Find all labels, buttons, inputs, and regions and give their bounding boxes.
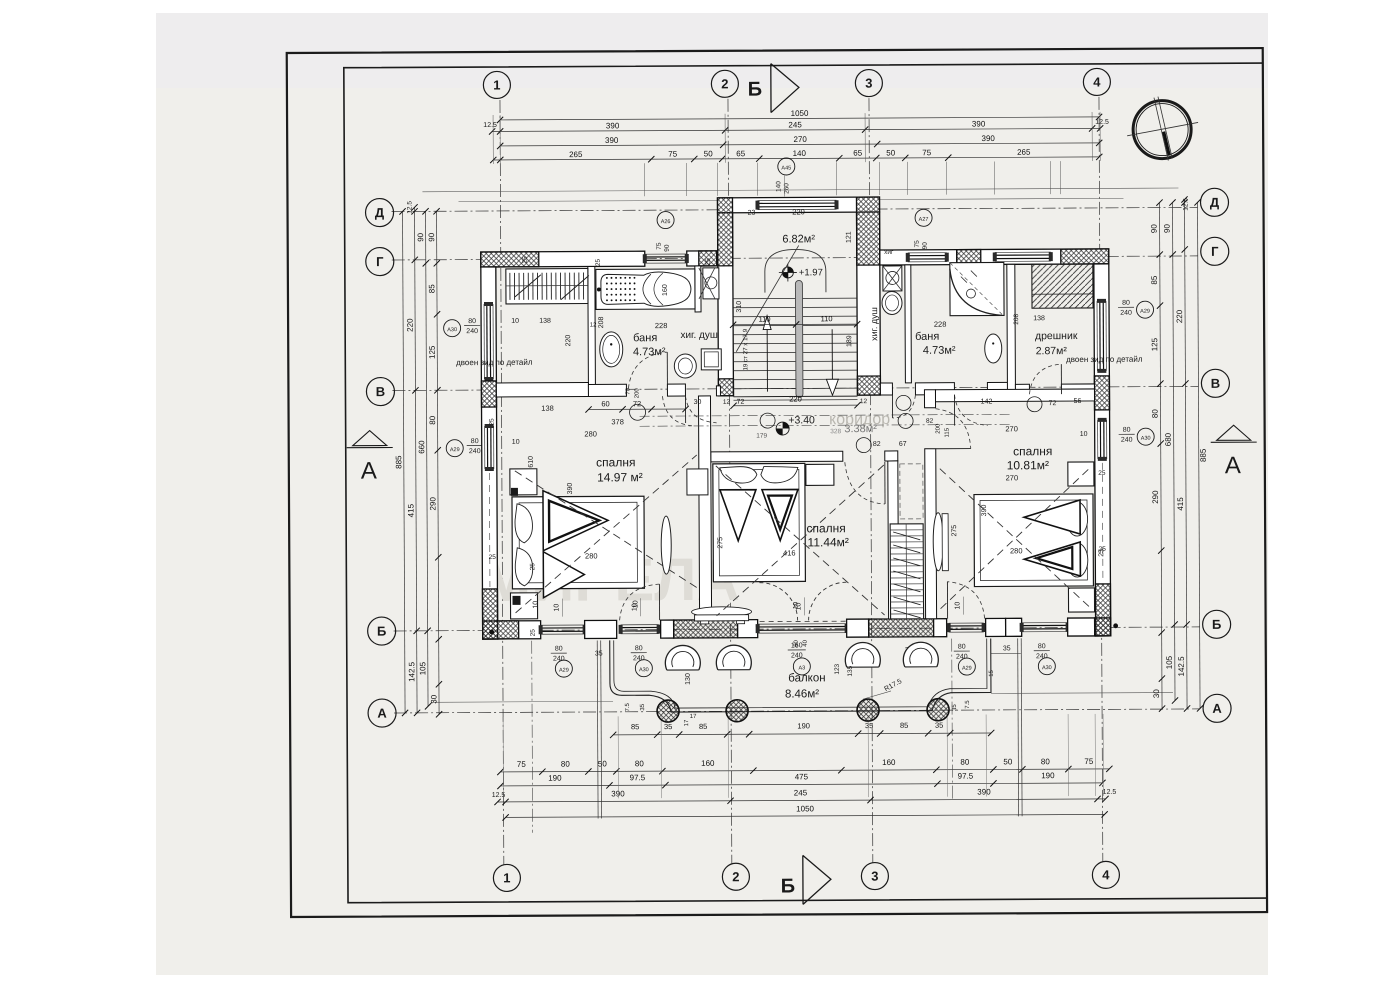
- svg-text:240: 240: [1120, 310, 1132, 317]
- svg-text:280: 280: [1010, 546, 1023, 555]
- svg-text:80: 80: [428, 415, 437, 424]
- svg-text:75: 75: [668, 150, 677, 159]
- svg-text:190: 190: [548, 774, 562, 783]
- svg-text:3: 3: [865, 76, 872, 91]
- svg-text:A26: A26: [661, 219, 671, 225]
- svg-text:67: 67: [899, 441, 907, 448]
- svg-text:90: 90: [1150, 224, 1159, 233]
- svg-text:А: А: [1225, 452, 1241, 479]
- svg-text:82: 82: [926, 418, 934, 425]
- svg-text:25: 25: [1098, 549, 1105, 557]
- svg-text:Г: Г: [376, 254, 384, 269]
- svg-text:спалня: спалня: [806, 521, 845, 535]
- svg-text:25: 25: [522, 256, 529, 264]
- svg-text:1050: 1050: [791, 109, 809, 118]
- svg-text:3.38м²: 3.38м²: [844, 423, 877, 435]
- svg-text:142.5: 142.5: [1177, 656, 1186, 677]
- svg-text:75: 75: [914, 240, 921, 248]
- svg-text:25: 25: [705, 258, 712, 266]
- svg-text:11.44м²: 11.44м²: [807, 535, 848, 549]
- svg-text:12.5: 12.5: [1095, 119, 1109, 126]
- svg-text:Б: Б: [377, 624, 386, 639]
- svg-text:75: 75: [922, 148, 931, 157]
- svg-text:390: 390: [605, 136, 619, 145]
- svg-text:Д: Д: [1210, 195, 1220, 210]
- svg-text:хиг. душ: хиг. душ: [869, 307, 879, 341]
- svg-text:A30: A30: [1141, 436, 1151, 442]
- svg-text:142: 142: [981, 398, 993, 405]
- svg-text:A30: A30: [447, 327, 457, 333]
- svg-text:240: 240: [1121, 437, 1133, 444]
- svg-text:В: В: [376, 384, 385, 399]
- svg-text:1050: 1050: [796, 804, 814, 813]
- svg-text:121: 121: [846, 231, 853, 243]
- svg-text:80: 80: [1038, 643, 1046, 650]
- svg-text:240: 240: [633, 655, 645, 662]
- svg-text:245: 245: [788, 120, 802, 129]
- svg-text:80: 80: [960, 758, 969, 767]
- svg-text:A3: A3: [798, 665, 805, 671]
- svg-text:80: 80: [1151, 409, 1160, 418]
- svg-text:10: 10: [955, 602, 962, 610]
- svg-text:190: 190: [1041, 771, 1055, 780]
- svg-text:A29: A29: [450, 447, 460, 453]
- svg-text:двоен зид по детайл: двоен зид по детайл: [1066, 355, 1143, 364]
- svg-text:142.5: 142.5: [407, 661, 416, 682]
- svg-text:10: 10: [533, 601, 540, 609]
- svg-text:265: 265: [569, 150, 583, 159]
- svg-text:240: 240: [466, 328, 478, 335]
- svg-text:220: 220: [406, 318, 415, 332]
- svg-text:35: 35: [664, 722, 672, 731]
- svg-text:240: 240: [1036, 653, 1048, 660]
- svg-text:12.5: 12.5: [483, 122, 497, 129]
- svg-text:240: 240: [469, 448, 481, 455]
- svg-text:123: 123: [834, 663, 841, 674]
- svg-text:14.97 м²: 14.97 м²: [597, 470, 643, 484]
- svg-text:90: 90: [427, 232, 436, 241]
- svg-text:дрешник: дрешник: [1035, 330, 1078, 342]
- svg-text:спалня: спалня: [1013, 444, 1052, 458]
- svg-text:65: 65: [736, 149, 745, 158]
- svg-text:179: 179: [756, 433, 767, 440]
- svg-text:140: 140: [793, 149, 807, 158]
- svg-text:105: 105: [418, 661, 427, 675]
- svg-text:12.5: 12.5: [1103, 789, 1117, 796]
- svg-text:220: 220: [1175, 309, 1184, 323]
- svg-text:80: 80: [1122, 300, 1130, 307]
- svg-text:50: 50: [1003, 757, 1012, 766]
- svg-text:390: 390: [981, 134, 995, 143]
- svg-text:245: 245: [794, 788, 808, 797]
- svg-text:19 ст 27 х 17.9: 19 ст 27 х 17.9: [742, 328, 749, 370]
- svg-text:50: 50: [886, 148, 895, 157]
- svg-text:баня: баня: [915, 331, 939, 343]
- svg-text:A27: A27: [919, 217, 929, 223]
- svg-text:160: 160: [882, 758, 896, 767]
- svg-text:17: 17: [690, 714, 697, 720]
- svg-text:90: 90: [664, 244, 671, 252]
- svg-text:15: 15: [989, 669, 995, 676]
- svg-text:80: 80: [635, 645, 643, 652]
- svg-text:82: 82: [873, 441, 881, 448]
- svg-text:140: 140: [775, 181, 782, 192]
- svg-text:спалня: спалня: [596, 455, 635, 469]
- svg-text:10: 10: [1080, 431, 1088, 438]
- svg-text:80: 80: [555, 646, 563, 653]
- svg-text:4: 4: [1102, 867, 1110, 882]
- svg-text:328: 328: [830, 428, 841, 435]
- svg-text:390: 390: [981, 505, 988, 517]
- svg-text:A30: A30: [639, 667, 649, 673]
- svg-text:7.5: 7.5: [625, 702, 631, 711]
- svg-text:270: 270: [1006, 473, 1019, 482]
- svg-text:25: 25: [489, 418, 496, 426]
- svg-text:135: 135: [847, 665, 854, 676]
- svg-text:17: 17: [684, 719, 690, 726]
- svg-text:Б: Б: [1212, 617, 1221, 632]
- svg-text:35: 35: [952, 704, 958, 711]
- svg-text:240: 240: [553, 656, 565, 663]
- svg-text:30: 30: [429, 694, 438, 703]
- svg-text:10: 10: [633, 600, 640, 608]
- svg-text:415: 415: [1176, 497, 1185, 511]
- svg-text:1: 1: [493, 77, 500, 92]
- svg-text:125: 125: [428, 345, 437, 359]
- svg-text:265: 265: [1017, 148, 1031, 157]
- svg-text:200: 200: [634, 388, 640, 399]
- svg-text:A29: A29: [1140, 309, 1150, 315]
- svg-text:35: 35: [1003, 645, 1011, 652]
- svg-text:72: 72: [633, 399, 641, 408]
- svg-text:50: 50: [704, 149, 713, 158]
- svg-text:80: 80: [468, 318, 476, 325]
- svg-text:3: 3: [871, 869, 878, 884]
- svg-text:390: 390: [977, 787, 991, 796]
- svg-text:80: 80: [471, 438, 479, 445]
- svg-text:75: 75: [1084, 757, 1093, 766]
- svg-text:160: 160: [701, 759, 715, 768]
- svg-text:228: 228: [655, 321, 668, 330]
- svg-text:60: 60: [601, 399, 609, 408]
- svg-text:885: 885: [1199, 448, 1208, 462]
- svg-text:7.5: 7.5: [965, 700, 971, 709]
- svg-text:189: 189: [846, 335, 853, 347]
- svg-text:275: 275: [717, 537, 724, 549]
- svg-text:30: 30: [694, 399, 702, 406]
- svg-text:275: 275: [951, 525, 958, 537]
- svg-text:2: 2: [732, 869, 739, 884]
- svg-text:138: 138: [1033, 315, 1045, 322]
- svg-text:390: 390: [606, 121, 620, 130]
- svg-text:В: В: [1211, 376, 1220, 391]
- svg-text:баня: баня: [633, 332, 657, 344]
- svg-text:130: 130: [685, 673, 692, 685]
- svg-text:60: 60: [794, 639, 800, 646]
- svg-text:660: 660: [417, 440, 426, 454]
- svg-text:125: 125: [1150, 337, 1159, 351]
- svg-text:Б: Б: [781, 875, 795, 897]
- svg-text:двоен зид по детайл: двоен зид по детайл: [456, 358, 533, 367]
- svg-text:90: 90: [922, 242, 929, 250]
- svg-text:138: 138: [539, 318, 551, 325]
- svg-text:56: 56: [1074, 398, 1082, 405]
- svg-text:310: 310: [736, 301, 743, 313]
- svg-text:Д: Д: [375, 205, 385, 220]
- svg-text:90: 90: [1163, 224, 1172, 233]
- svg-text:А: А: [377, 706, 387, 721]
- svg-text:390: 390: [972, 119, 986, 128]
- svg-text:Б: Б: [748, 79, 762, 101]
- svg-text:+3.40: +3.40: [788, 414, 815, 426]
- svg-text:80: 80: [1123, 427, 1131, 434]
- svg-text:А: А: [361, 458, 377, 485]
- svg-text:2: 2: [721, 76, 728, 91]
- svg-text:+1.97: +1.97: [799, 267, 823, 278]
- svg-text:105: 105: [1165, 655, 1174, 669]
- svg-text:65: 65: [853, 149, 862, 158]
- svg-text:220: 220: [789, 394, 802, 403]
- svg-text:25: 25: [595, 258, 602, 266]
- svg-text:12: 12: [590, 322, 597, 328]
- svg-text:25: 25: [1098, 470, 1106, 477]
- svg-text:415: 415: [407, 503, 416, 517]
- svg-text:1: 1: [503, 870, 510, 885]
- svg-text:190: 190: [797, 721, 810, 730]
- svg-text:610: 610: [528, 456, 535, 468]
- svg-text:2.87м²: 2.87м²: [1036, 345, 1068, 357]
- svg-text:280: 280: [584, 429, 597, 438]
- svg-text:280: 280: [585, 551, 598, 560]
- svg-text:85: 85: [631, 722, 639, 731]
- svg-text:хиг: хиг: [884, 249, 894, 256]
- svg-text:270: 270: [793, 135, 807, 144]
- svg-text:378: 378: [611, 417, 624, 426]
- svg-text:A30: A30: [1042, 665, 1052, 671]
- svg-text:85: 85: [900, 721, 908, 730]
- svg-text:390: 390: [567, 483, 574, 495]
- svg-text:4: 4: [1093, 74, 1101, 89]
- svg-text:10: 10: [512, 439, 520, 446]
- svg-text:10.81м²: 10.81м²: [1007, 458, 1049, 472]
- svg-text:75: 75: [517, 760, 526, 769]
- svg-text:220: 220: [565, 335, 572, 347]
- svg-text:85: 85: [699, 722, 707, 731]
- svg-text:72: 72: [1049, 400, 1057, 407]
- svg-text:Г: Г: [1211, 244, 1219, 259]
- svg-text:балкон: балкон: [788, 672, 825, 684]
- svg-text:70: 70: [625, 387, 631, 394]
- svg-text:220: 220: [792, 207, 805, 216]
- svg-text:110: 110: [821, 314, 833, 323]
- svg-text:12: 12: [723, 399, 731, 406]
- svg-text:35: 35: [640, 703, 646, 710]
- svg-text:208: 208: [1013, 314, 1020, 325]
- svg-text:110: 110: [759, 315, 771, 324]
- svg-text:240: 240: [791, 652, 803, 659]
- svg-text:208: 208: [598, 316, 605, 328]
- svg-text:A29: A29: [962, 666, 972, 672]
- svg-text:50: 50: [598, 759, 607, 768]
- svg-text:12: 12: [860, 398, 868, 405]
- svg-text:40: 40: [803, 639, 809, 646]
- svg-text:A29: A29: [559, 668, 569, 674]
- svg-text:160: 160: [662, 284, 669, 296]
- svg-text:25: 25: [530, 629, 537, 637]
- svg-text:30: 30: [1152, 689, 1161, 698]
- svg-text:885: 885: [394, 455, 403, 469]
- svg-text:23: 23: [748, 210, 756, 217]
- svg-text:10: 10: [511, 318, 519, 325]
- svg-text:200: 200: [936, 423, 942, 434]
- svg-text:8.46м²: 8.46м²: [785, 688, 819, 700]
- svg-text:75: 75: [656, 242, 663, 250]
- svg-text:290: 290: [1151, 490, 1160, 504]
- svg-text:416: 416: [783, 548, 796, 557]
- svg-text:10: 10: [554, 604, 561, 612]
- svg-text:138: 138: [541, 404, 554, 413]
- svg-text:35: 35: [595, 650, 603, 657]
- svg-text:35: 35: [865, 721, 873, 730]
- svg-text:6.82м²: 6.82м²: [782, 233, 815, 245]
- svg-text:80: 80: [958, 644, 966, 651]
- svg-text:А: А: [1212, 701, 1222, 716]
- svg-text:85: 85: [427, 284, 436, 293]
- svg-text:80: 80: [1041, 757, 1050, 766]
- svg-text:12.5: 12.5: [1182, 198, 1189, 211]
- svg-text:228: 228: [934, 320, 947, 329]
- svg-text:115: 115: [945, 427, 951, 437]
- svg-text:12.5: 12.5: [406, 201, 413, 214]
- svg-text:35: 35: [935, 721, 943, 730]
- svg-text:290: 290: [428, 497, 437, 511]
- svg-text:270: 270: [1005, 424, 1018, 433]
- svg-text:A45: A45: [781, 165, 791, 171]
- svg-text:90: 90: [416, 232, 425, 241]
- svg-text:80: 80: [561, 760, 570, 769]
- svg-text:10: 10: [793, 601, 800, 609]
- svg-text:80: 80: [635, 759, 644, 768]
- svg-text:25: 25: [529, 563, 536, 571]
- svg-text:97.5: 97.5: [630, 773, 646, 782]
- svg-text:97.5: 97.5: [958, 772, 974, 781]
- svg-text:475: 475: [795, 772, 809, 781]
- svg-text:4.73м²: 4.73м²: [923, 345, 956, 357]
- svg-text:680: 680: [1164, 432, 1173, 446]
- svg-text:4.73м²: 4.73м²: [633, 346, 666, 358]
- svg-text:240: 240: [956, 654, 968, 661]
- svg-text:25: 25: [489, 554, 497, 561]
- svg-text:85: 85: [1150, 275, 1159, 284]
- svg-text:хиг. душ: хиг. душ: [680, 330, 717, 341]
- svg-text:72: 72: [737, 399, 745, 406]
